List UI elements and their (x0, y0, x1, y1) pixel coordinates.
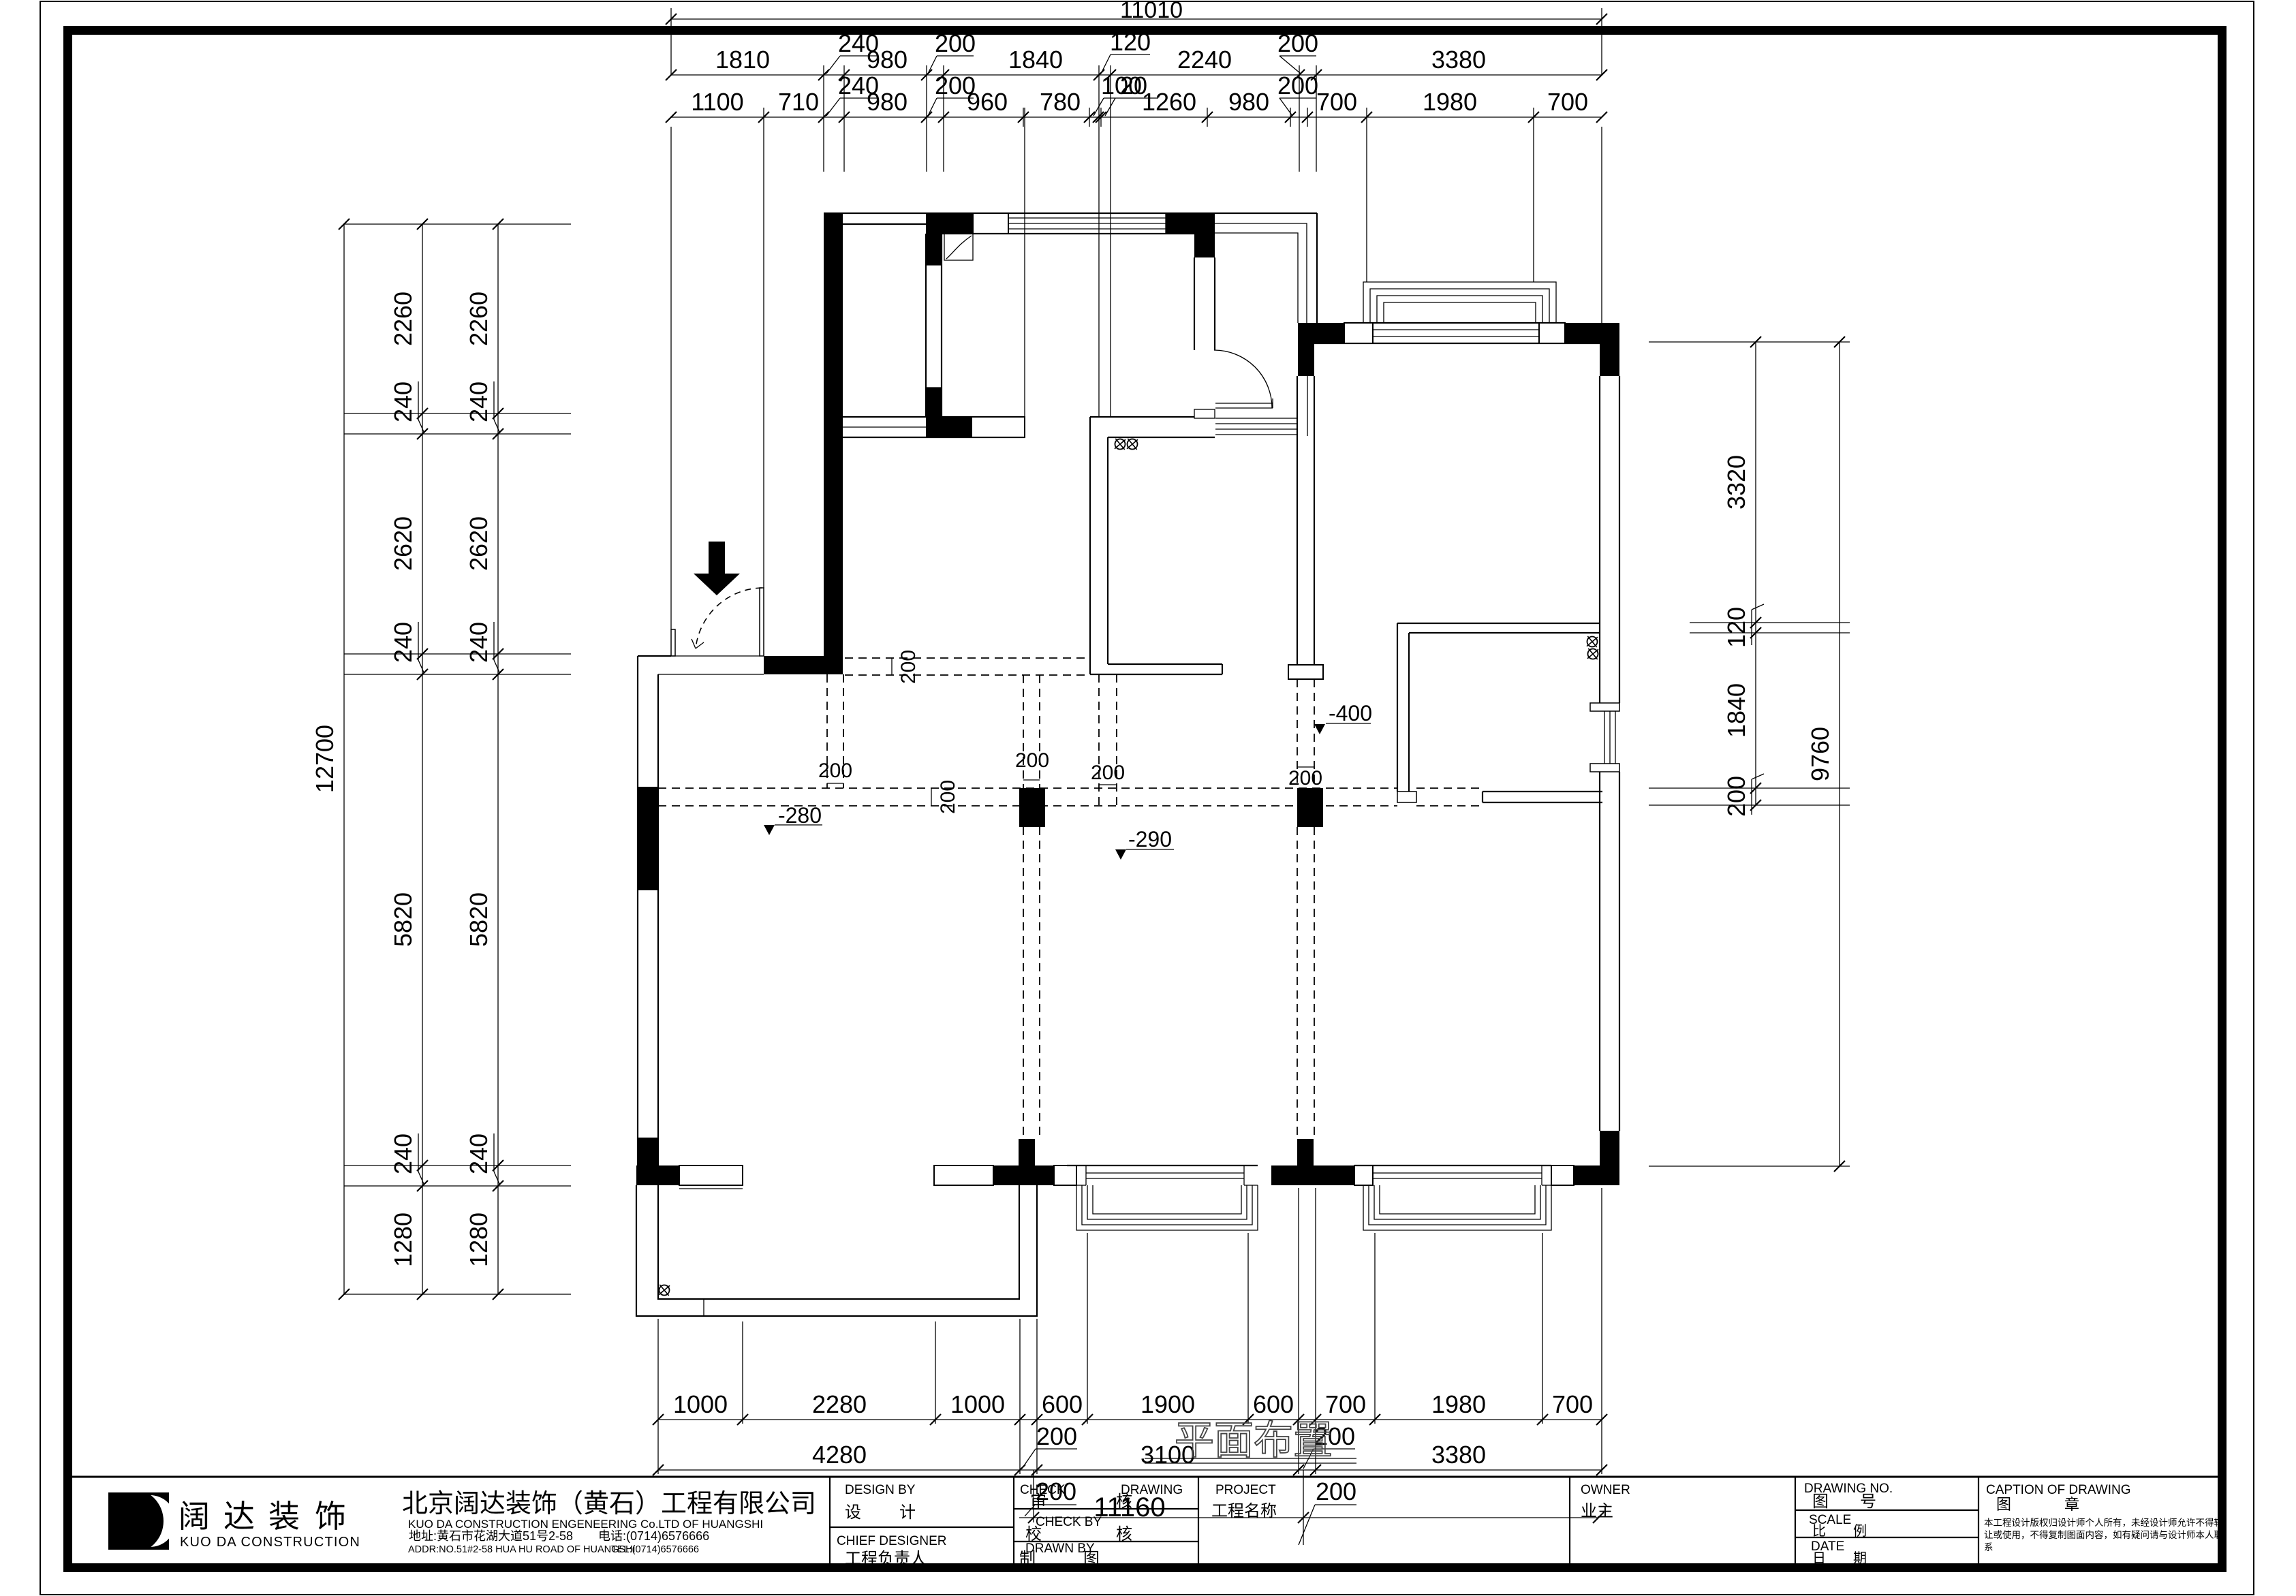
svg-text:5820: 5820 (389, 892, 417, 947)
svg-text:装: 装 (268, 1499, 300, 1534)
svg-text:11160: 11160 (1093, 1492, 1165, 1522)
svg-text:200: 200 (1036, 1422, 1077, 1450)
svg-text:DESIGN BY: DESIGN BY (845, 1483, 916, 1497)
svg-text:700: 700 (1316, 88, 1357, 116)
svg-text:1000: 1000 (950, 1390, 1005, 1418)
svg-text:200: 200 (1036, 1477, 1076, 1505)
svg-text:1280: 1280 (389, 1212, 417, 1267)
svg-text:校: 校 (1025, 1525, 1042, 1544)
svg-text:4280: 4280 (812, 1441, 867, 1469)
svg-text:780: 780 (1040, 88, 1081, 116)
svg-text:工程负责人: 工程负责人 (845, 1550, 927, 1568)
svg-text:200: 200 (1722, 776, 1750, 817)
svg-text:240: 240 (389, 622, 417, 663)
svg-text:ADDR:NO.51#2-58 HUA HU ROAD OF: ADDR:NO.51#2-58 HUA HU ROAD OF HUANGSHI (408, 1544, 636, 1555)
svg-text:2240: 2240 (1177, 46, 1232, 74)
svg-text:3320: 3320 (1722, 455, 1750, 510)
svg-text:面: 面 (1214, 1418, 1254, 1462)
svg-text:200: 200 (1316, 1477, 1356, 1505)
svg-text:章: 章 (2064, 1496, 2079, 1513)
svg-text:号: 号 (1860, 1492, 1876, 1511)
svg-text:-400: -400 (1329, 701, 1372, 725)
svg-text:图: 图 (1083, 1550, 1100, 1568)
svg-text:北京阔达装饰（黄石）工程有限公司: 北京阔达装饰（黄石）工程有限公司 (402, 1490, 816, 1518)
svg-text:电话:(0714)6576666: 电话:(0714)6576666 (598, 1529, 709, 1543)
svg-text:阔: 阔 (179, 1499, 210, 1534)
svg-text:240: 240 (465, 381, 493, 422)
svg-text:2620: 2620 (465, 516, 493, 571)
svg-text:12700: 12700 (311, 725, 339, 793)
svg-text:例: 例 (1853, 1523, 1867, 1539)
svg-text:700: 700 (1547, 88, 1588, 116)
svg-text:200: 200 (1015, 749, 1049, 772)
svg-text:600: 600 (1253, 1390, 1294, 1418)
svg-text:1260: 1260 (1142, 88, 1196, 116)
svg-text:1810: 1810 (715, 46, 770, 74)
svg-text:710: 710 (778, 88, 819, 116)
svg-text:计: 计 (899, 1503, 916, 1522)
svg-text:240: 240 (465, 622, 493, 663)
svg-text:地址:黄石市花湖大道51号2-58: 地址:黄石市花湖大道51号2-58 (409, 1529, 573, 1543)
svg-text:制: 制 (1019, 1550, 1036, 1568)
svg-text:3380: 3380 (1431, 46, 1486, 74)
svg-text:980: 980 (1228, 88, 1269, 116)
svg-text:KUO DA CONSTRUCTION: KUO DA CONSTRUCTION (180, 1535, 360, 1550)
svg-text:5820: 5820 (465, 892, 493, 947)
svg-text:1000: 1000 (673, 1390, 728, 1418)
svg-text:3380: 3380 (1431, 1441, 1486, 1469)
svg-text:比: 比 (1812, 1523, 1826, 1539)
svg-text:期: 期 (1853, 1551, 1867, 1566)
svg-text:图: 图 (1812, 1492, 1829, 1511)
svg-text:1840: 1840 (1008, 46, 1063, 74)
svg-text:CHECK BY: CHECK BY (1036, 1515, 1102, 1529)
svg-text:700: 700 (1325, 1390, 1366, 1418)
svg-text:1980: 1980 (1431, 1390, 1486, 1418)
svg-text:1100: 1100 (691, 88, 743, 116)
svg-text:OWNER: OWNER (1581, 1483, 1630, 1497)
svg-text:240: 240 (389, 381, 417, 422)
svg-text:1980: 1980 (1423, 88, 1477, 116)
svg-text:240: 240 (465, 1133, 493, 1174)
svg-text:200: 200 (935, 72, 976, 99)
svg-text:图: 图 (1996, 1496, 2011, 1513)
svg-text:2620: 2620 (389, 516, 417, 571)
svg-text:200: 200 (935, 29, 976, 57)
svg-text:TEL:(0714)6576666: TEL:(0714)6576666 (611, 1544, 699, 1555)
svg-text:达: 达 (223, 1499, 255, 1534)
svg-text:20: 20 (1120, 72, 1147, 99)
svg-text:120: 120 (1110, 28, 1151, 56)
svg-text:-290: -290 (1128, 827, 1172, 851)
svg-text:200: 200 (1277, 72, 1318, 99)
svg-text:600: 600 (1042, 1390, 1083, 1418)
svg-text:200: 200 (937, 780, 959, 814)
svg-text:1280: 1280 (465, 1212, 493, 1267)
svg-text:9760: 9760 (1806, 727, 1834, 781)
svg-text:平: 平 (1175, 1418, 1214, 1462)
svg-text:700: 700 (1552, 1390, 1593, 1418)
svg-text:200: 200 (1277, 29, 1318, 57)
svg-text:-280: -280 (778, 803, 822, 828)
svg-text:日: 日 (1812, 1551, 1826, 1566)
svg-text:置: 置 (1293, 1418, 1333, 1462)
svg-text:布: 布 (1254, 1418, 1293, 1462)
svg-text:PROJECT: PROJECT (1215, 1483, 1276, 1497)
svg-text:1900: 1900 (1141, 1390, 1195, 1418)
svg-text:200: 200 (1091, 762, 1125, 784)
svg-text:240: 240 (838, 29, 879, 57)
svg-text:CAPTION OF DRAWING: CAPTION OF DRAWING (1986, 1483, 2131, 1497)
svg-text:200: 200 (818, 760, 852, 782)
svg-text:CHIEF DESIGNER: CHIEF DESIGNER (837, 1534, 947, 1548)
svg-text:饰: 饰 (315, 1499, 346, 1534)
svg-text:11010: 11010 (1120, 0, 1183, 23)
svg-text:设: 设 (845, 1503, 861, 1522)
svg-text:核: 核 (1116, 1525, 1132, 1544)
svg-text:本工程设计版权归设计师个人所有，未经设计师允许不得转: 本工程设计版权归设计师个人所有，未经设计师允许不得转 (1984, 1517, 2223, 1528)
svg-text:让或使用，不得复制图面内容，如有疑问请与设计师本人联: 让或使用，不得复制图面内容，如有疑问请与设计师本人联 (1984, 1529, 2223, 1540)
svg-text:2280: 2280 (812, 1390, 867, 1418)
svg-text:200: 200 (897, 650, 920, 684)
svg-text:240: 240 (389, 1133, 417, 1174)
svg-text:系: 系 (1984, 1542, 1994, 1552)
svg-text:2260: 2260 (465, 292, 493, 346)
svg-text:200: 200 (1288, 767, 1322, 789)
svg-text:1840: 1840 (1722, 683, 1750, 738)
svg-text:2260: 2260 (389, 292, 417, 346)
svg-text:120: 120 (1722, 607, 1750, 648)
